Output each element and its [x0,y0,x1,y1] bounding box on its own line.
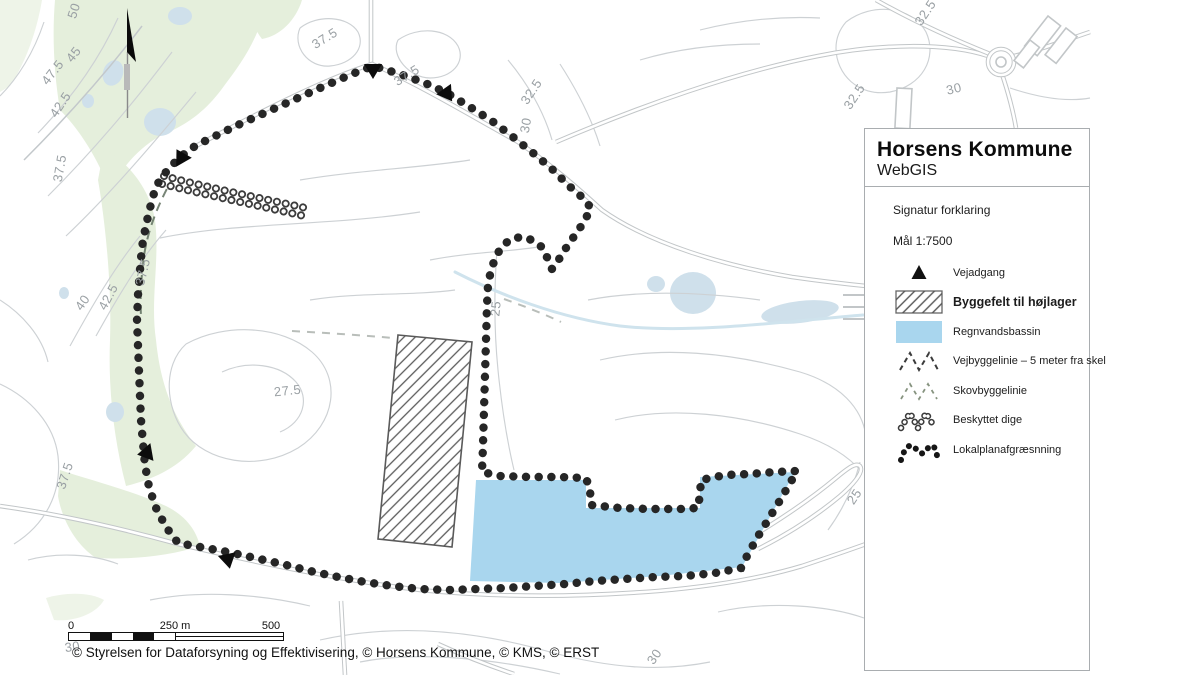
scale-bar-middle: 250 m [160,620,191,632]
contour-label: 32.5 [840,81,868,112]
legend-body: Signatur forklaring Mål 1:7500 Vejadgang… [865,187,1089,465]
dashed-zigzag-dark-icon [893,347,945,375]
app-title: Horsens Kommune [877,138,1077,162]
contour-label: 30 [644,646,665,667]
legend-section-title: Signatur forklaring [893,203,1081,217]
legend-panel: Horsens Kommune WebGIS Signatur forklari… [864,128,1090,671]
rainwater-basin [470,472,795,583]
contour-label: 30 [945,79,964,97]
contour-label: 32.5 [911,0,939,28]
dashed-zigzag-light-icon [893,377,945,405]
legend-item-label: Beskyttet dige [953,414,1022,426]
contour-label: 30 [517,116,534,134]
legend-items: VejadgangByggefelt til højlagerRegnvands… [893,258,1081,465]
legend-item-label: Vejbyggelinie – 5 meter fra skel [953,355,1106,367]
legend-item: Skovbyggelinie [893,376,1081,406]
hatched-area-icon [893,288,945,316]
contour-label: 27.5 [273,382,302,400]
legend-item: Lokalplanafgræsnning [893,435,1081,465]
legend-item-label: Byggefelt til højlager [953,295,1077,309]
contour-label: 32.5 [517,76,545,107]
scale-bar-graphic [68,632,284,641]
legend-item: Byggefelt til højlager [893,288,1081,318]
legend-item-label: Regnvandsbassin [953,326,1040,338]
protected-dike [162,176,306,216]
road-setback-line [292,331,393,338]
scale-bar: 0 250 m 500 m [68,620,284,641]
legend-item: Vejbyggelinie – 5 meter fra skel [893,347,1081,377]
construction-field [378,335,472,547]
contour-label: 40 [72,292,93,313]
app-subtitle: WebGIS [877,162,1077,180]
scale-bar-zero: 0 [68,620,74,632]
map-scale-label: Mål 1:7500 [893,234,1081,248]
map-attribution: © Styrelsen for Dataforsyning og Effekti… [72,645,599,660]
contour-label: 25 [487,300,504,317]
ring-chain-icon [893,405,945,435]
legend-item-label: Lokalplanafgræsnning [953,444,1061,456]
road-access-triangle-icon [893,261,945,285]
legend-item: Vejadgang [893,258,1081,288]
dot-chain-icon [893,435,945,465]
water-swatch-icon [893,318,945,346]
legend-item-label: Vejadgang [953,267,1005,279]
scale-bar-labels: 0 250 m 500 m [68,620,284,632]
webgis-app: 504547.542.537.537.542.54027.537.537.537… [0,0,1200,675]
contour-label: 37.5 [50,153,70,183]
legend-item: Beskyttet dige [893,406,1081,436]
legend-header: Horsens Kommune WebGIS [865,129,1089,187]
legend-item: Regnvandsbassin [893,317,1081,347]
legend-item-label: Skovbyggelinie [953,385,1027,397]
forest-layer [0,0,302,620]
contour-label: 37.5 [309,25,340,52]
